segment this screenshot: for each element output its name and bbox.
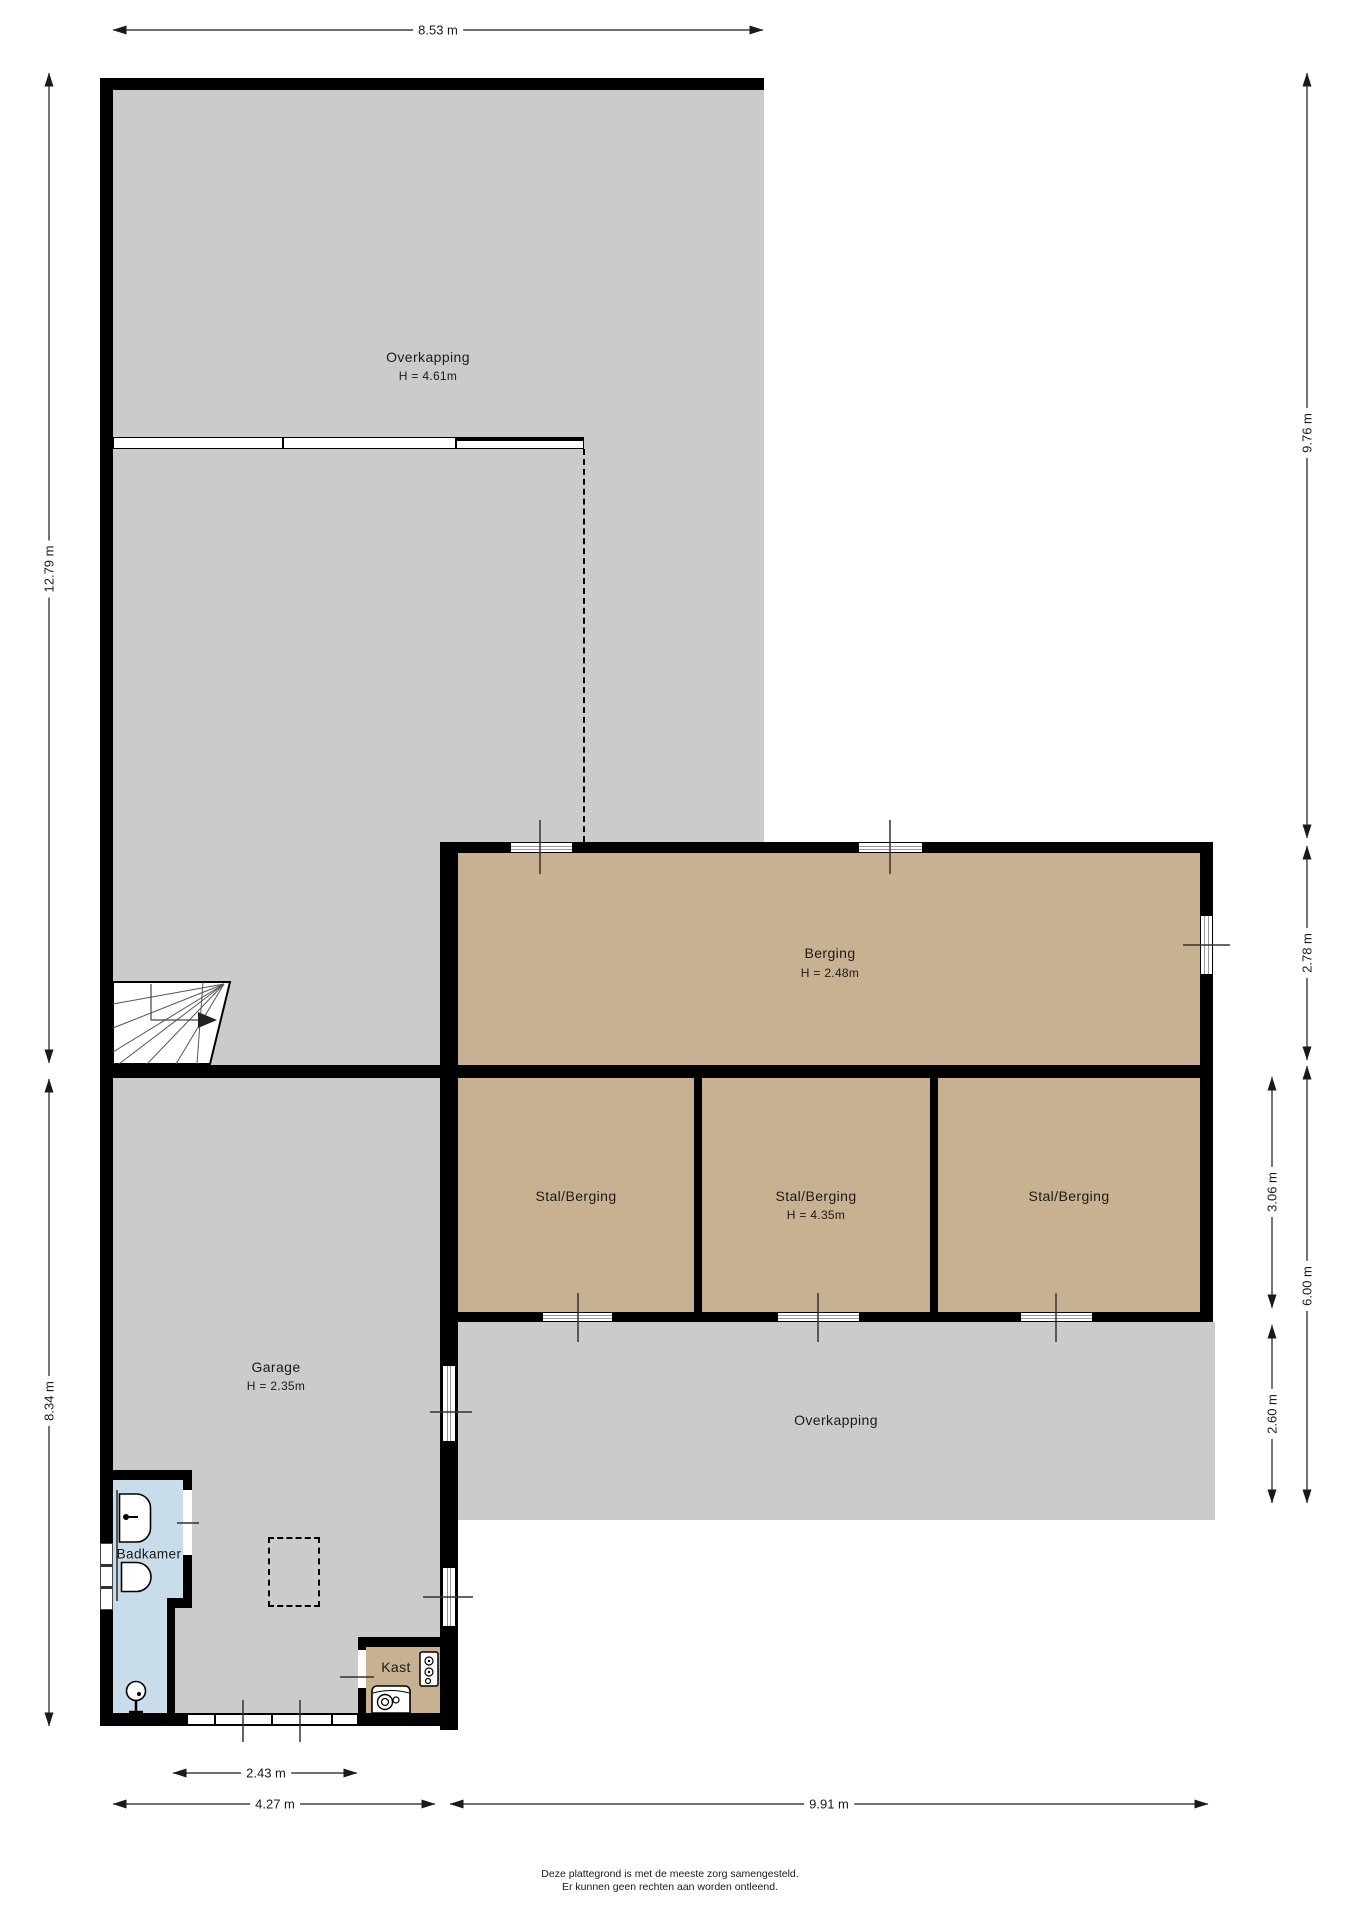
dim-bottom-garage-door-width: 2.43 m (241, 1765, 291, 1782)
dim-right-lower-total-height: 6.00 m (1299, 1261, 1316, 1311)
dim-right-berging-height: 2.78 m (1299, 928, 1316, 978)
dim-right-overkapping-height: 2.60 m (1264, 1389, 1281, 1439)
berging-label: Berging (804, 945, 855, 961)
plan-graphics-overlay (0, 0, 1358, 1920)
stal-berging-2-height-label: H = 4.35m (787, 1208, 845, 1222)
toilet-icon (122, 1563, 152, 1592)
overkapping-top-label: Overkapping (386, 349, 470, 365)
garage-label: Garage (251, 1359, 300, 1375)
dim-bottom-right-width: 9.91 m (804, 1796, 854, 1813)
overkapping-bottom-label: Overkapping (794, 1412, 878, 1428)
dim-left-lower-height: 8.34 m (41, 1376, 58, 1426)
dim-left-upper-height: 12.79 m (41, 541, 58, 598)
stal-berging-2-label: Stal/Berging (775, 1188, 856, 1204)
opening-ticks (177, 820, 1230, 1742)
washing-machine-icon (372, 1686, 410, 1713)
badkamer-label: Badkamer (117, 1547, 182, 1562)
overkapping-top-height-label: H = 4.61m (399, 369, 457, 383)
floorplan-page: Overkapping H = 4.61m Berging H = 2.48m … (0, 0, 1358, 1920)
badkamer-fixtures (117, 1490, 151, 1712)
shower-icon (127, 1682, 146, 1713)
berging-height-label: H = 2.48m (801, 966, 859, 980)
dim-top-width: 8.53 m (413, 22, 463, 39)
stal-berging-3-label: Stal/Berging (1028, 1188, 1109, 1204)
stal-berging-1-label: Stal/Berging (535, 1188, 616, 1204)
staircase-icon (113, 982, 230, 1064)
kast-label: Kast (381, 1659, 411, 1675)
dim-right-upper-height: 9.76 m (1299, 408, 1316, 458)
garage-height-label: H = 2.35m (247, 1379, 305, 1393)
dimension-lines (49, 30, 1307, 1804)
boiler-icon (420, 1652, 438, 1686)
dim-bottom-garage-width: 4.27 m (250, 1796, 300, 1813)
dim-right-stal-height: 3.06 m (1264, 1167, 1281, 1217)
